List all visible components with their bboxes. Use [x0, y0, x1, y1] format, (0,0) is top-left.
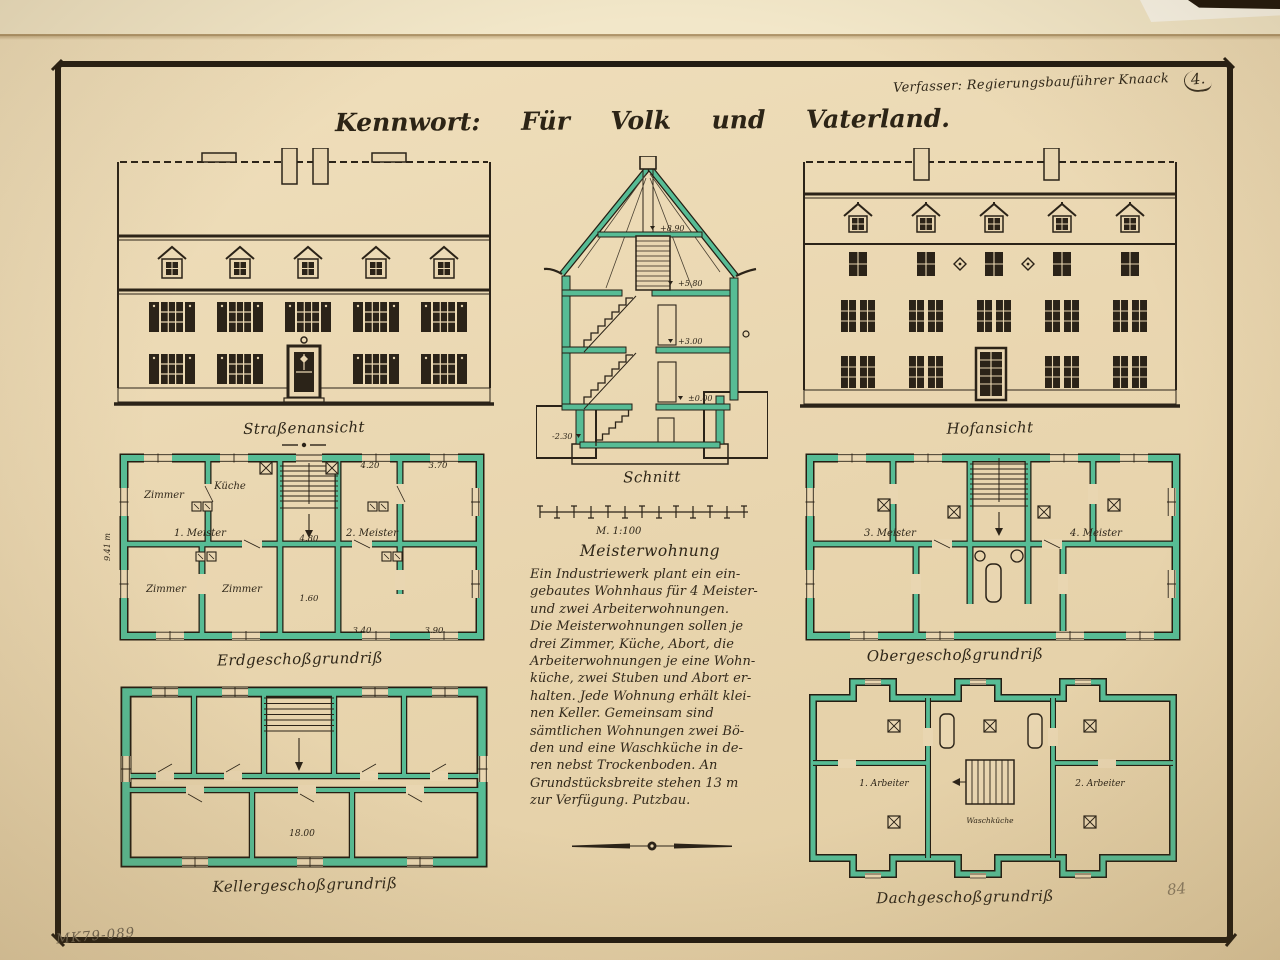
svg-text:±0.00: ±0.00 [688, 394, 713, 403]
washtub [1028, 714, 1042, 748]
description-line: gebautes Wohnhaus für 4 Meister- [530, 583, 770, 600]
star-ornament [954, 258, 966, 270]
upper-window-row [149, 302, 467, 332]
attic-stair [636, 236, 670, 290]
title-word: Volk [610, 106, 671, 135]
stair [970, 458, 1028, 536]
svg-text:+5.80: +5.80 [678, 279, 703, 288]
room-label: 1. Arbeiter [859, 779, 909, 789]
dim-label: 18.00 [289, 829, 315, 839]
washtub [940, 714, 954, 748]
title-word: und [711, 105, 765, 134]
page-number-badge: 4. [1183, 69, 1212, 94]
description-divider-ornament [572, 838, 732, 854]
room-label: 1. Meister [174, 528, 227, 539]
title-word: Vaterland. [806, 104, 950, 134]
attic-plan: 1. Arbeiter Waschküche 2. Arbeiter [798, 668, 1188, 890]
description-line: halten. Jede Wohnung erhält klei- [530, 688, 770, 705]
depth-dim-label: 9.41 m [103, 533, 112, 561]
description-block: Meisterwohnung Ein Industriewerk plant e… [530, 542, 770, 810]
description-line: ren nebst Trockenboden. An [530, 757, 770, 774]
description-line: sämtlichen Wohnungen zwei Bö- [530, 723, 770, 740]
bathtub [986, 564, 1001, 602]
dim-label: 3.40 [353, 626, 373, 636]
bathroom-fixtures [975, 550, 1023, 602]
room-label: Waschküche [966, 816, 1014, 825]
page-curl-band [0, 0, 1280, 36]
scale-bar: M. 1:100 [534, 496, 754, 540]
description-heading: Meisterwohnung [530, 542, 770, 560]
page-number: 4. [1183, 69, 1212, 94]
courtyard-door [976, 348, 1006, 400]
entrance-door [284, 337, 324, 402]
dim-label: 3.70 [429, 461, 449, 471]
basement-plan: 18.00 [112, 676, 497, 878]
room-label: 2. Arbeiter [1074, 779, 1125, 789]
ground-floor-plan: Zimmer Küche 1. Meister 2. Meister Zimme… [100, 444, 500, 649]
upper-window-row [841, 300, 1147, 332]
description-line: den und eine Waschküche in de- [530, 740, 770, 757]
description-line: nen Keller. Gemeinsam sind [530, 705, 770, 722]
dim-label: 1.60 [300, 594, 320, 604]
dim-label: 4.80 [299, 534, 320, 544]
description-line: Ein Industriewerk plant ein ein- [530, 566, 770, 583]
svg-text:+3.00: +3.00 [678, 337, 703, 346]
description-line: zur Verfügung. Putzbau. [530, 792, 770, 809]
dormer-row [158, 247, 458, 278]
street-elevation-drawing [110, 148, 498, 416]
title-keyword-label: Kennwort: [335, 107, 481, 137]
scale-label: M. 1:100 [595, 526, 642, 537]
title-row: Kennwort: Für Volk und Vaterland. [335, 104, 950, 137]
description-line: drei Zimmer, Küche, Abort, die [530, 636, 770, 653]
room-label: Zimmer [143, 490, 185, 501]
dormer-row [844, 202, 1144, 232]
dim-label: 3.90 [425, 626, 445, 636]
svg-text:-2.30: -2.30 [552, 432, 573, 441]
svg-text:+8.90: +8.90 [660, 224, 685, 233]
scanned-drawing-sheet: Verfasser: Regierungsbauführer Knaack 4.… [0, 0, 1280, 960]
room-label: Zimmer [145, 584, 187, 595]
scan-dark-notch [1188, 0, 1280, 9]
small-window-row [849, 252, 1139, 276]
room-label: Küche [213, 481, 246, 492]
stair [952, 760, 1014, 804]
upper-floor-plan: 3. Meister 4. Meister [798, 444, 1188, 646]
room-label: 3. Meister [864, 528, 917, 539]
stair-flight [584, 298, 633, 347]
page-curl-shadow [0, 34, 1280, 40]
room-label: Zimmer [221, 584, 263, 595]
description-line: Die Meisterwohnungen sollen je [530, 618, 770, 635]
description-line: und zwei Arbeiterwohnungen. [530, 601, 770, 618]
stair [264, 698, 334, 771]
section-drawing: +8.90 +5.80 +3.00 ±0.00 -2.30 [536, 156, 768, 470]
room-label: 4. Meister [1069, 528, 1123, 539]
description-line: Grundstücksbreite stehen 13 m [530, 775, 770, 792]
pencil-page-number: 84 [1166, 879, 1187, 899]
description-line: küche, zwei Stuben und Abort er- [530, 670, 770, 687]
title-word: Für [521, 107, 570, 136]
description-line: Arbeiterwohnungen je eine Wohn- [530, 653, 770, 670]
room-label: 2. Meister [345, 528, 399, 539]
courtyard-elevation-drawing [796, 148, 1184, 416]
dim-label: 4.20 [360, 461, 381, 471]
star-ornament [1022, 258, 1034, 270]
